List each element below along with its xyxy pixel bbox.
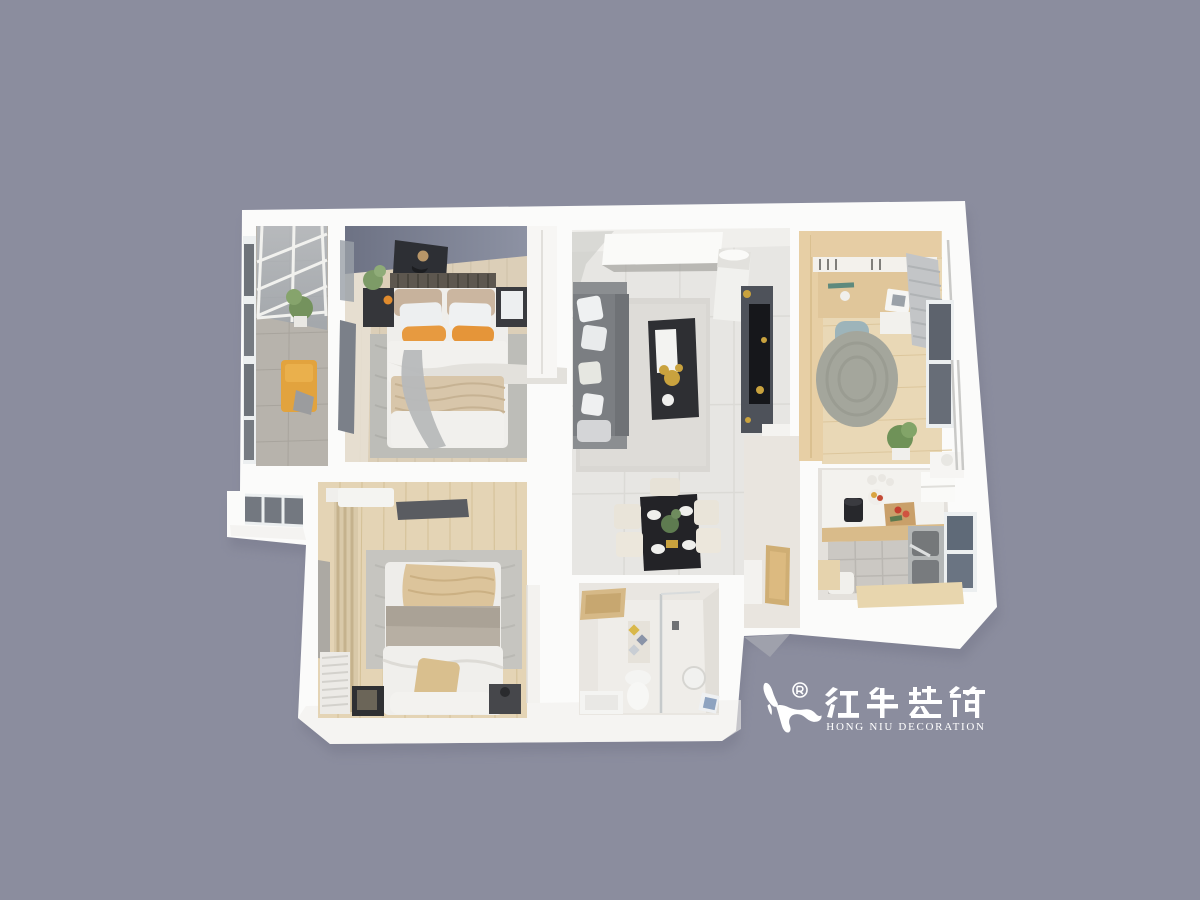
svg-text:HONG NIU DECORATION: HONG NIU DECORATION bbox=[826, 721, 985, 733]
